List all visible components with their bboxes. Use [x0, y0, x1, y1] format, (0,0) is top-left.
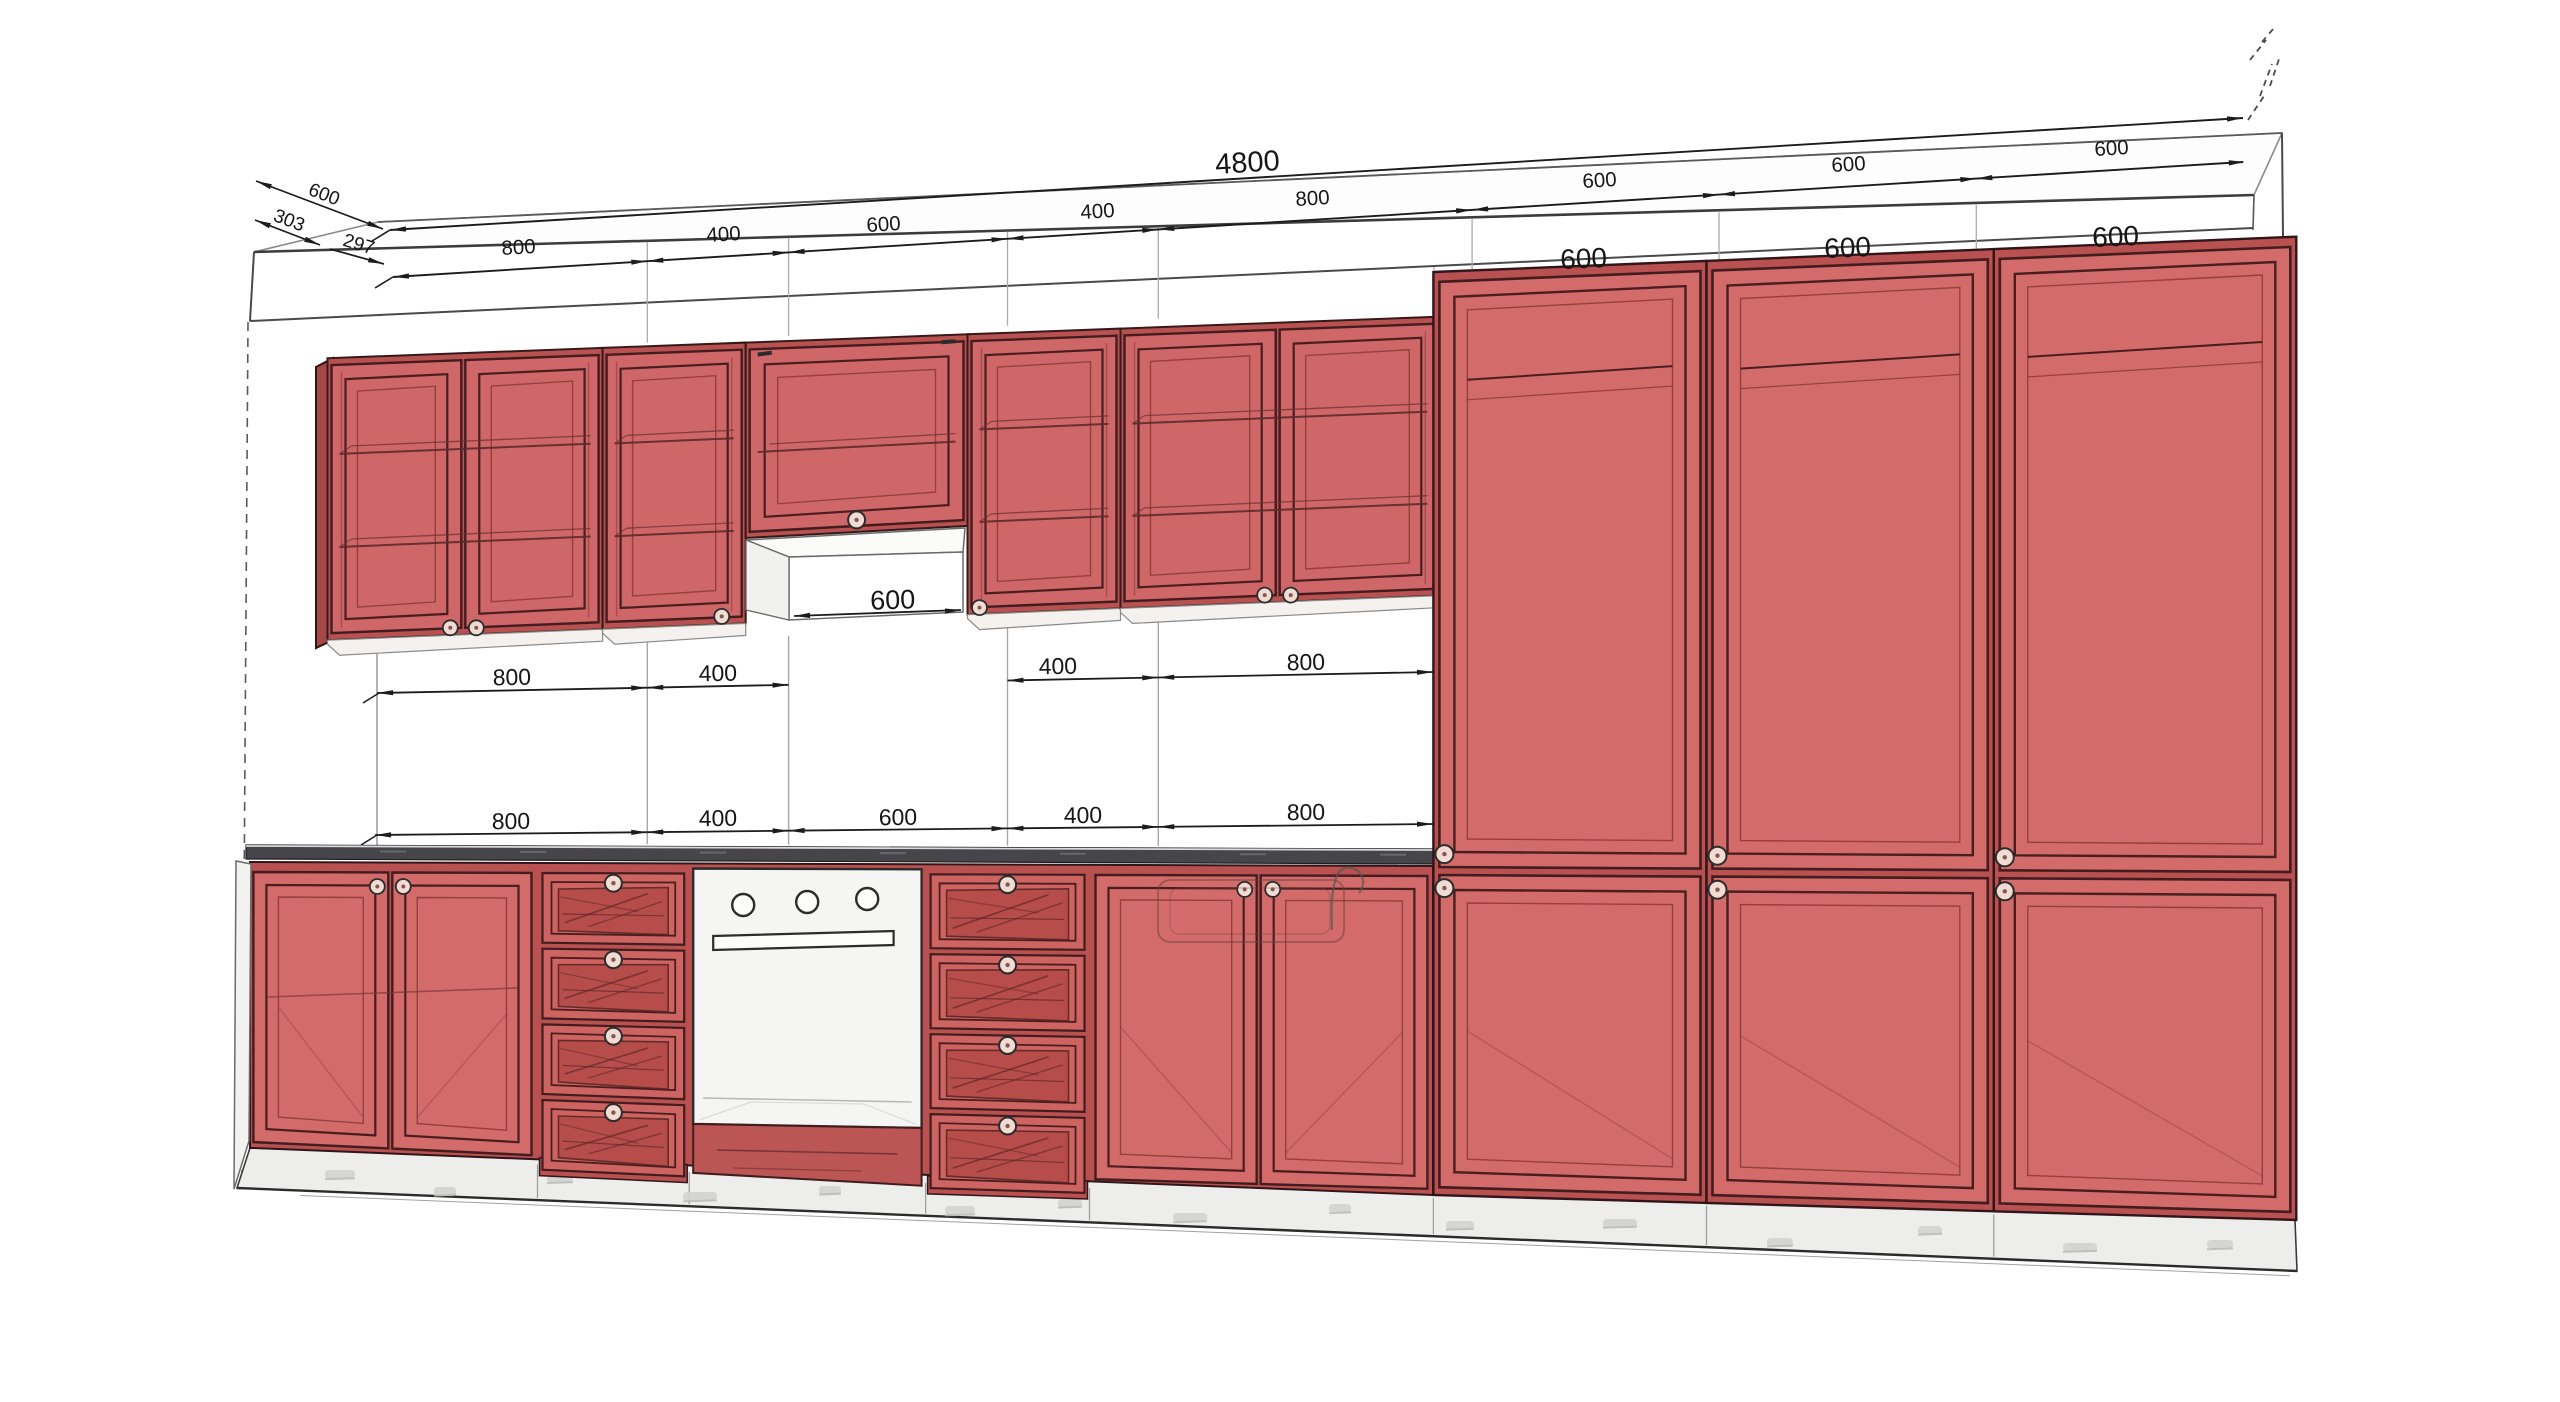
- svg-text:600: 600: [879, 804, 918, 830]
- svg-text:400: 400: [1080, 199, 1116, 224]
- svg-text:400: 400: [1064, 802, 1103, 828]
- svg-text:400: 400: [706, 222, 742, 247]
- svg-text:600: 600: [1824, 231, 1872, 264]
- svg-text:400: 400: [1038, 653, 1077, 680]
- svg-text:800: 800: [501, 235, 537, 260]
- svg-text:600: 600: [2094, 136, 2130, 161]
- svg-text:600: 600: [2092, 220, 2140, 253]
- svg-text:600: 600: [866, 212, 902, 237]
- svg-text:600: 600: [1560, 242, 1608, 275]
- svg-text:800: 800: [1287, 799, 1326, 825]
- svg-text:400: 400: [699, 805, 738, 831]
- svg-text:400: 400: [698, 660, 737, 687]
- svg-text:800: 800: [1286, 649, 1325, 676]
- svg-text:600: 600: [870, 584, 916, 616]
- svg-text:600: 600: [1582, 168, 1618, 193]
- svg-text:600: 600: [1831, 152, 1867, 177]
- svg-text:4800: 4800: [1214, 145, 1280, 181]
- svg-text:800: 800: [492, 664, 531, 691]
- svg-text:800: 800: [492, 808, 531, 834]
- svg-text:800: 800: [1295, 186, 1331, 211]
